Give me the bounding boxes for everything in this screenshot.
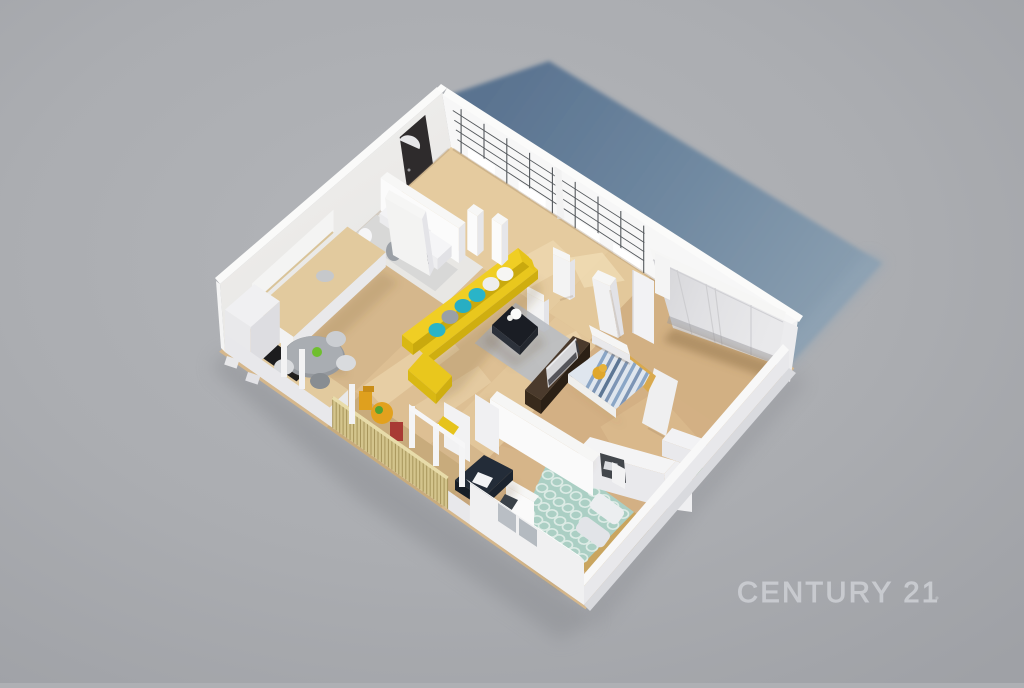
svg-text:CENTURY 21: CENTURY 21 xyxy=(737,577,940,609)
